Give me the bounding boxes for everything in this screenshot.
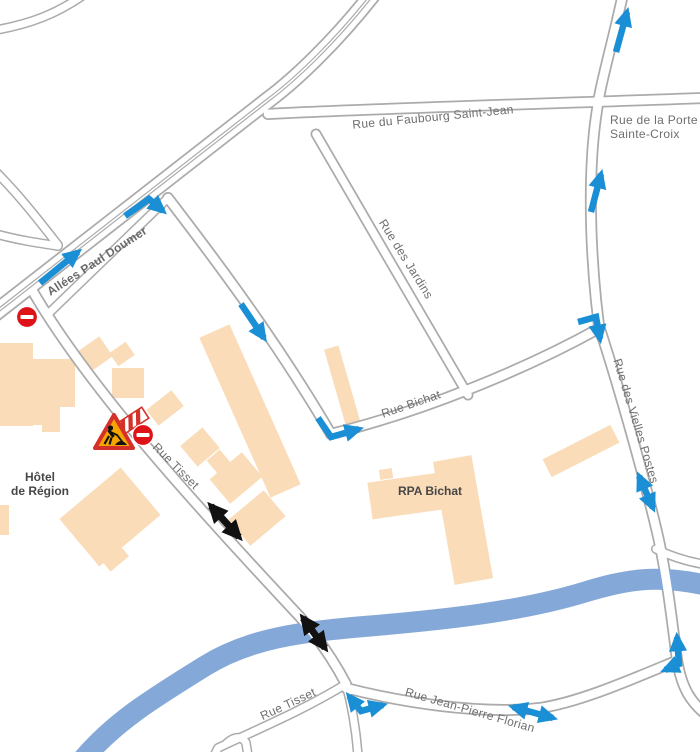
- street-label-porte-sainte-croix-line2: Sainte-Croix: [610, 127, 680, 141]
- building: [112, 368, 144, 398]
- building: [379, 468, 393, 480]
- place-label-hotel-de-region-line1: Hôtel: [25, 470, 55, 484]
- map-canvas: Allées Paul Doumer Rue du Faubourg Saint…: [0, 0, 700, 752]
- building: [0, 343, 33, 426]
- building: [0, 505, 9, 535]
- no-entry-sign-icon: [133, 425, 154, 446]
- place-label-hotel-de-region-line2: de Région: [11, 484, 69, 498]
- place-label-rpa-bichat: RPA Bichat: [398, 484, 462, 498]
- no-entry-sign-icon: [17, 307, 38, 328]
- street-label-porte-sainte-croix-line1: Rue de la Porte: [610, 113, 698, 127]
- street-map: Allées Paul Doumer Rue du Faubourg Saint…: [0, 0, 700, 752]
- building: [42, 359, 75, 407]
- building: [42, 407, 60, 432]
